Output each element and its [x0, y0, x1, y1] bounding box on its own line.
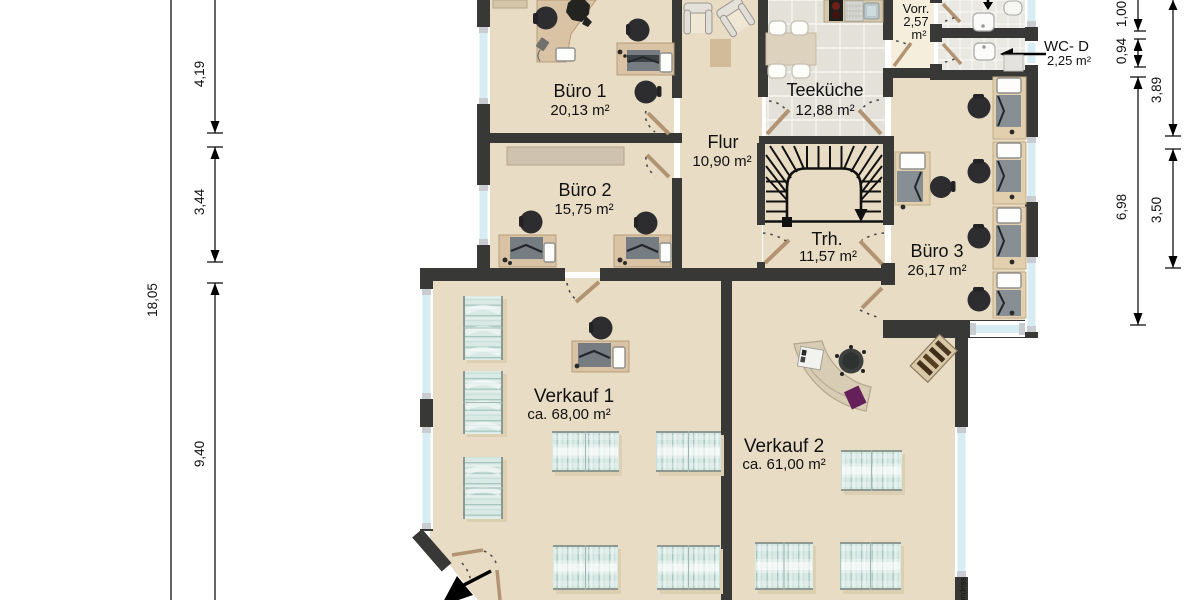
svg-text:ca. 61,00 m²: ca. 61,00 m²: [742, 456, 825, 473]
svg-text:Teeküche: Teeküche: [786, 80, 863, 100]
svg-text:Verkauf 2: Verkauf 2: [744, 436, 824, 457]
svg-text:3,50: 3,50: [1149, 197, 1164, 223]
svg-text:15,75 m²: 15,75 m²: [554, 201, 613, 218]
svg-text:Trh.: Trh.: [811, 229, 842, 249]
svg-text:Büro 3: Büro 3: [910, 241, 963, 261]
svg-text:Flur: Flur: [708, 132, 739, 152]
svg-text:Verkauf 1: Verkauf 1: [534, 386, 614, 407]
svg-text:Büro 1: Büro 1: [553, 81, 606, 101]
svg-text:20,13 m²: 20,13 m²: [550, 102, 609, 119]
svg-text:11,57 m²: 11,57 m²: [799, 248, 857, 265]
svg-text:3,44: 3,44: [192, 188, 207, 215]
svg-text:Grundriss: Grundriss: [959, 577, 968, 600]
svg-text:4,19: 4,19: [192, 61, 207, 87]
svg-text:6,98: 6,98: [1114, 194, 1129, 220]
svg-text:10,90 m²: 10,90 m²: [692, 153, 751, 170]
svg-text:18,05: 18,05: [145, 283, 160, 317]
svg-text:26,17 m²: 26,17 m²: [907, 262, 966, 279]
svg-text:1,00: 1,00: [1114, 1, 1129, 27]
svg-text:0,94: 0,94: [1114, 37, 1129, 64]
svg-text:m²: m²: [911, 27, 927, 42]
svg-text:9,40: 9,40: [192, 441, 207, 467]
svg-text:ca. 68,00 m²: ca. 68,00 m²: [527, 406, 610, 423]
svg-text:2,25 m²: 2,25 m²: [1047, 53, 1092, 68]
svg-text:12,88 m²: 12,88 m²: [795, 102, 854, 119]
svg-text:3,89: 3,89: [1149, 77, 1164, 103]
svg-text:Büro 2: Büro 2: [558, 180, 611, 200]
